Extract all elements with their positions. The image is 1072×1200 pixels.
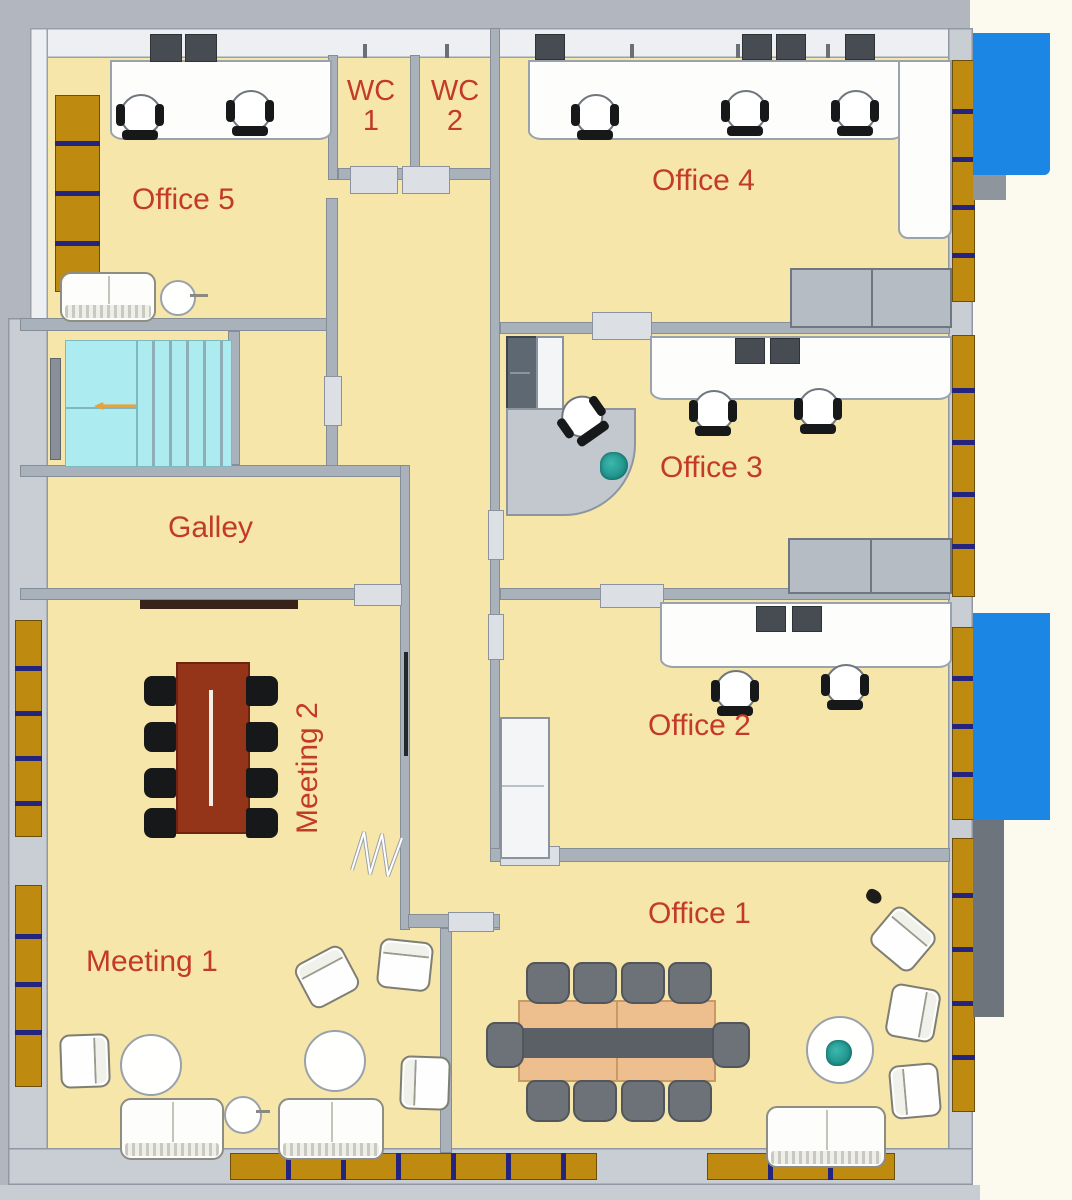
meeting2-table [176,662,250,834]
shelf-office3 [536,336,564,412]
exterior-stub-gray-bottom [973,820,1004,1017]
meeting-chair [144,676,176,706]
table-runner-office1 [494,1028,738,1058]
room-label-wc1: WC1 [340,76,402,137]
conference-chair [668,962,712,1004]
monitor-office5-2 [185,34,217,62]
coffee-table-meeting1 [120,1034,182,1096]
side-table-handle [256,1110,270,1113]
cabinet-office3 [788,538,952,594]
office-chair [721,88,769,136]
armchair-meeting1 [399,1055,451,1111]
door-office2-corridor [488,614,504,660]
room-label-office3: Office 3 [660,452,763,484]
exterior-bottom-strip [0,1185,980,1200]
wall-tick [826,44,830,58]
conference-chair [621,962,665,1004]
exterior-feature-blue-mid [973,613,1050,820]
conference-chair [668,1080,712,1122]
sofa-office5 [60,272,156,322]
monitor-office4-1 [535,34,565,60]
lamp-stem [190,294,208,297]
office-chair [821,662,869,710]
conference-chair-end [486,1022,524,1068]
armchair-office1 [884,982,943,1044]
exterior-top-strip [0,0,970,28]
sofa-meeting1 [120,1098,224,1160]
wall-wc1-wc2 [410,55,420,168]
office-chair [689,388,737,436]
stair-handrail [50,358,61,460]
side-table-meeting1 [224,1096,262,1134]
room-label-office1: Office 1 [648,898,751,930]
door-marking-dark [404,652,408,756]
meeting-chair [144,768,176,798]
window-strip-right-2 [952,335,975,597]
wall-meeting1-office1 [440,928,452,1153]
wall-tick [736,44,740,58]
armchair-office1 [888,1062,943,1120]
floor-plan: Office 5 WC1 WC2 Office 4 Galley [0,0,1072,1200]
office-chair [226,88,274,136]
door-corridor-meeting1 [448,912,494,932]
monitor-office2-2 [792,606,822,632]
door-office4 [592,312,652,340]
conference-chair-end [712,1022,750,1068]
door-galley [354,584,402,606]
door-break-symbol [350,828,408,880]
window-strip-right-1 [952,60,975,302]
desk-office4-return [898,60,952,239]
wall-galley-bottom [20,588,410,600]
conference-chair [573,1080,617,1122]
window-strip-office5 [55,95,100,292]
monitor-office3-1 [735,338,765,364]
wall-tick [363,44,367,58]
conference-chair [621,1080,665,1122]
window-strip-right-3 [952,627,975,820]
meeting-chair [246,722,278,752]
room-label-office5: Office 5 [132,184,235,216]
door-stair-landing [324,376,342,426]
meeting-chair [246,808,278,838]
meeting-chair [246,768,278,798]
window-strip-right-4 [952,838,975,1112]
side-table-office5 [160,280,196,316]
meeting-chair [144,808,176,838]
office-chair [831,88,879,136]
conference-chair [526,1080,570,1122]
room-label-meeting1: Meeting 1 [86,946,218,978]
room-label-meeting2: Meeting 2 [292,662,324,834]
exterior-stub-gray-top [973,175,1006,200]
door-office3-office2 [600,584,664,608]
conference-chair [526,962,570,1004]
armchair-meeting1 [376,937,435,992]
cabinet-office2 [500,717,550,859]
sofa-office1 [766,1106,886,1168]
monitor-office3-2 [770,338,800,364]
door-wc2 [402,166,450,194]
wall-left-upper-exterior [30,28,48,331]
coffee-table-meeting1 [304,1030,366,1092]
staircase [65,340,232,467]
office-chair [116,92,164,140]
door-wc1 [350,166,398,194]
monitor-office4-3 [776,34,806,60]
window-strip-meeting1 [15,885,42,1087]
monitor-office2-1 [756,606,786,632]
armchair-meeting1 [59,1033,111,1089]
counter-meeting2 [140,600,298,609]
conference-chair [573,962,617,1004]
room-label-office4: Office 4 [652,165,755,197]
wall-tick [445,44,449,58]
monitor-office4-4 [845,34,875,60]
office-chair [794,386,842,434]
exterior-feature-blue-top [973,33,1050,175]
monitor-office5-1 [150,34,182,62]
monitor-office4-2 [742,34,772,60]
door-office3-corridor [488,510,504,560]
wall-corridor-right [490,28,500,862]
office-chair [571,92,619,140]
room-label-galley: Galley [168,512,253,544]
cabinet-tall-office3 [506,336,538,414]
room-label-office2: Office 2 [648,710,751,742]
wall-tick [630,44,634,58]
cabinet-office4 [790,268,952,328]
room-label-wc2: WC2 [424,76,486,137]
wall-corridor-left-upper [326,198,338,468]
meeting-chair [144,722,176,752]
sofa-meeting1 [278,1098,384,1160]
meeting-chair [246,676,278,706]
window-strip-meeting2 [15,620,42,837]
stair-steps [138,341,231,466]
stair-divider [136,341,138,466]
